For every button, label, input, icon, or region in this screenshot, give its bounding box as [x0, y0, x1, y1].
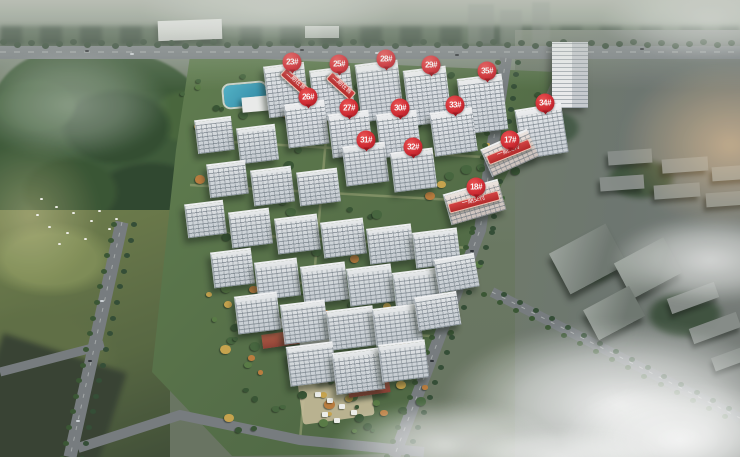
atmospheric-veil: [0, 0, 740, 457]
aerial-rendering: 二期在售二期在售一期交付一期交付23#25#28#29#35#34#26#27#…: [0, 0, 740, 457]
